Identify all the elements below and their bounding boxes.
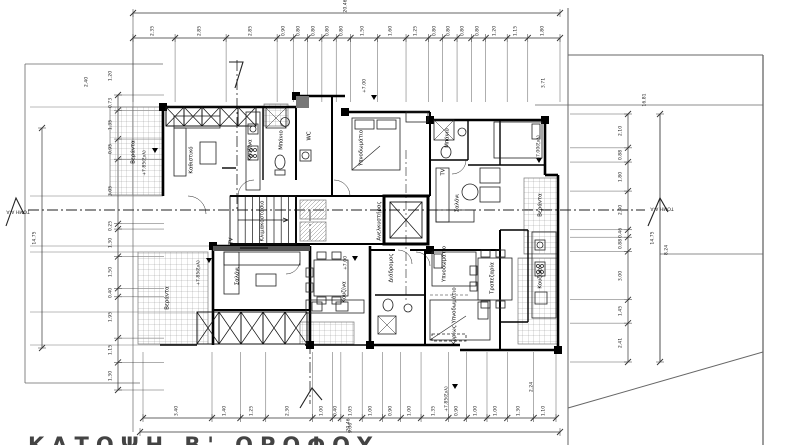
section-cut-mark-bottom (300, 388, 322, 408)
section-cut-mark-top (229, 62, 243, 88)
balcony-hatch (110, 104, 558, 344)
drawing-title: ΚΑΤΟΨΗ Β' ΟΡΟΦΟΥ (28, 433, 379, 445)
site-boundary (25, 8, 763, 445)
plan-linework (0, 0, 790, 445)
furniture (174, 108, 556, 341)
floorplan-sheet: ΒεράνταΚαθιστικόΚουζίναΜπάνιοΥπνοδωμάτιο… (0, 0, 790, 445)
dimension-chains (38, 9, 664, 436)
staircase (230, 196, 296, 244)
section-lines (6, 60, 668, 408)
section-cut-mark-left (6, 198, 24, 226)
section-cut-mark-right (648, 198, 668, 226)
